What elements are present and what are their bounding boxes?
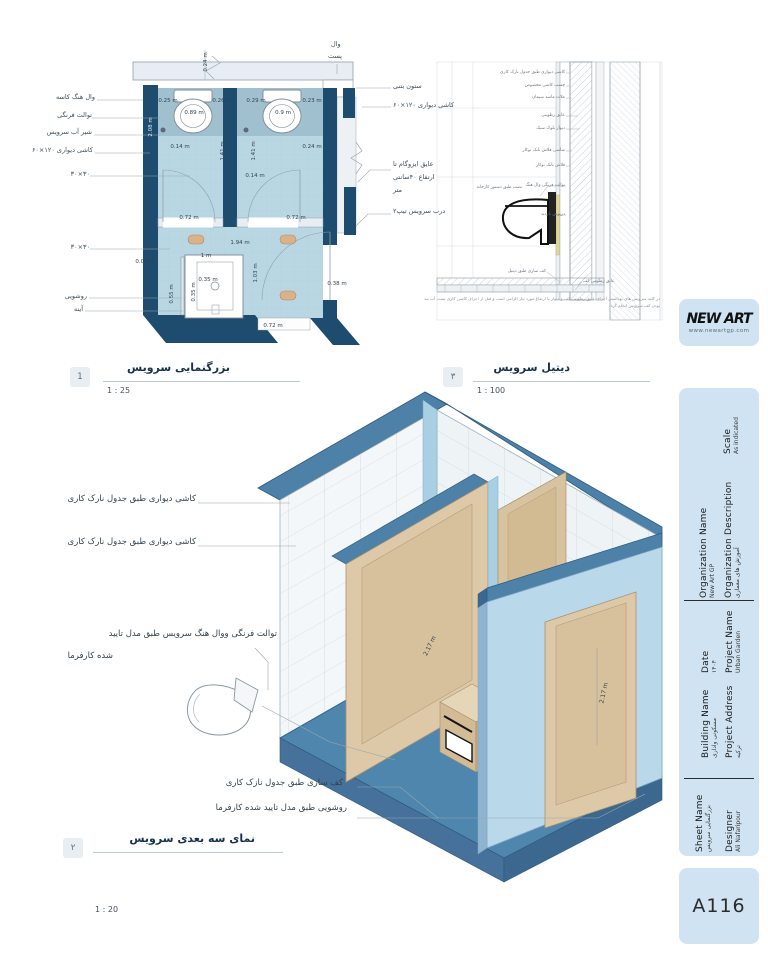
titleblock-divider xyxy=(684,600,754,601)
field-sheet-name: Sheet Name بزرگنمایی سرویس xyxy=(695,780,712,852)
field-designer: Designer Ali Nafaripour xyxy=(725,780,742,852)
field-organization-name: Organization Name New Art GP xyxy=(699,488,716,598)
drawing-sheet: وال هنگ کاسهتوالت فرنگیشیر آب سرویسکاشی … xyxy=(0,0,768,955)
titleblock-divider xyxy=(684,778,754,779)
newart-logo: NEW ART xyxy=(686,312,751,326)
field-scale: Scale As indicated xyxy=(723,392,740,454)
field-project-name: Project Name Urban Garden xyxy=(725,620,742,673)
field-project-address: Project Address ترکیه xyxy=(725,688,742,758)
iso-drawing xyxy=(187,392,662,882)
field-building-name: Building Name مسکونی واداری xyxy=(701,688,718,758)
sheet-number-box: A116 xyxy=(679,868,759,944)
iso-title-rule xyxy=(93,852,283,853)
logo-box: NEW ART www.newartgp.com xyxy=(679,299,759,346)
detail-view-number: ۳ xyxy=(443,367,463,387)
sheet-linework xyxy=(0,0,768,955)
wall-hung-toilet-glyph xyxy=(187,678,258,735)
plan-title-rule xyxy=(103,381,300,382)
detail-drawing xyxy=(437,62,662,320)
plan-view-scale: 1 : 25 xyxy=(107,386,130,395)
sheet-number: A116 xyxy=(679,868,759,944)
detail-view-title: دیتیل سرویس xyxy=(493,361,570,374)
detail-view-scale: 1 : 100 xyxy=(477,386,505,395)
iso-view-number: ۲ xyxy=(63,838,83,858)
iso-view-scale: 1 : 20 xyxy=(95,905,118,914)
plan-drawing xyxy=(85,50,391,345)
field-date: Date ۱۴۰۴ xyxy=(701,643,718,673)
plan-view-title: بزرگنمایی سرویس xyxy=(127,361,230,374)
titleblock-fields: Scale As indicated Organization Name New… xyxy=(679,388,759,856)
field-organization-description: Organization Description آموزش های معمار… xyxy=(724,480,741,598)
iso-view-title: نمای سه بعدی سرویس xyxy=(129,832,255,845)
plan-view-number: 1 xyxy=(70,367,90,387)
logo-url: www.newartgp.com xyxy=(689,328,750,334)
detail-title-rule xyxy=(473,381,650,382)
